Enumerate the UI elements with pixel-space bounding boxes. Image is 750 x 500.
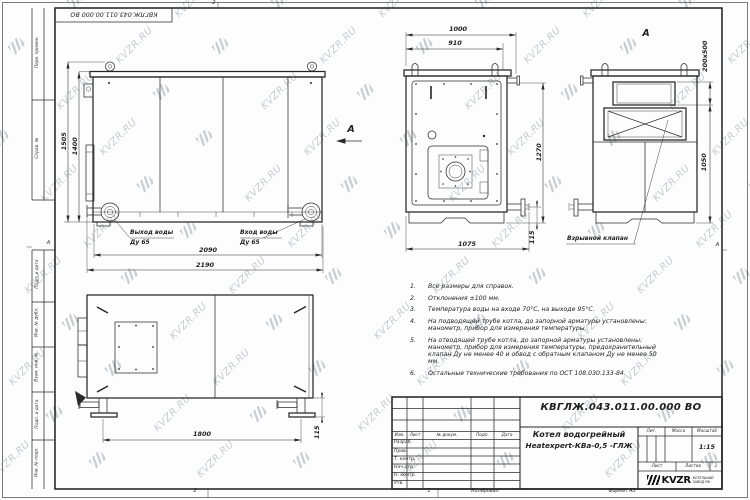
sheets-count: 1	[710, 464, 722, 468]
header-scale: Масштаб	[692, 429, 722, 433]
dim-side-height: 1270	[536, 132, 543, 172]
dim-opening: 200x500	[702, 36, 709, 76]
rear-view	[566, 64, 713, 245]
product-name-line1: Котел водогрейный	[521, 431, 637, 439]
dim-width-body: 2090	[188, 247, 228, 254]
note-number: 2.	[410, 295, 421, 302]
note-text: Остальные технические требования по ОСТ …	[421, 370, 660, 377]
copied-label: Копировал	[455, 490, 515, 495]
view-arrow-letter: А	[345, 125, 357, 135]
col-header-data: Дата	[494, 433, 520, 437]
dim-height-body: 1400	[72, 126, 79, 166]
drawing-sheet: KVZR.RUKVZR.RUKVZR.RUKVZR.RUKVZR.RUKVZR.…	[0, 0, 750, 500]
note-text: Температура воды на входе 70°С, на выход…	[421, 306, 660, 313]
label-water-outlet: Выход воды	[130, 230, 173, 236]
note-number: 3.	[410, 306, 421, 313]
row-n-kontr: Н. контр.	[394, 474, 416, 479]
row-utv: Утв.	[394, 482, 404, 487]
dim-side-bottom: 1075	[447, 241, 487, 248]
row-prov: Пров.	[394, 450, 407, 455]
zone-marker-top: 2	[209, 1, 219, 6]
side-view	[404, 32, 546, 252]
note-text: Все размеры для справок.	[421, 283, 660, 290]
side-label-sprav-no: Справ. №	[36, 98, 40, 198]
product-name-line2: Heatexpert-КВа-0,5 -ГЛЖ	[521, 442, 637, 449]
kvzr-logo-text: KVZR	[662, 475, 691, 486]
label-explosion-valve: Взрывной клапан	[567, 236, 628, 242]
bottom-zone-2: 2	[190, 490, 200, 495]
bottom-side-view	[75, 295, 325, 443]
kvzr-logo-mark-icon	[647, 475, 660, 485]
note-item: 4.На подводящей трубе котла, до запорной…	[410, 318, 660, 332]
note-number: 6.	[410, 370, 421, 377]
note-text: На подводящей трубе котла, до запорной а…	[421, 318, 660, 332]
side-label-vzam-inv: Взам. инв. №	[35, 345, 39, 390]
drawing-linework	[0, 0, 750, 500]
header-mass: Масса	[665, 429, 692, 433]
side-label-podp-data-2: Подп. и дата	[36, 390, 40, 438]
technical-notes: 1.Все размеры для справок. 2.Отклонения …	[410, 283, 660, 381]
side-label-podp-data-1: Подп. и дата	[36, 248, 40, 300]
label-water-inlet: Вход воды	[240, 230, 278, 236]
header-sheet: Лист	[638, 464, 676, 468]
col-header-doc: № докум.	[423, 433, 471, 437]
side-label-inv-podl: Инв. № подл.	[35, 438, 39, 487]
side-label-inv-dubl: Инв. № дубл.	[35, 300, 39, 345]
zone-marker-left: А	[44, 241, 53, 246]
dim-height-total: 1505	[61, 121, 68, 161]
dim-rear-height: 1050	[701, 142, 708, 182]
note-item: 2.Отклонения ±100 мм.	[410, 295, 660, 302]
dim-support-span: 1800	[182, 431, 222, 438]
row-razrab: Разраб.	[394, 441, 412, 446]
kvzr-logo-sub2: ЗАВОД РФ	[693, 480, 714, 484]
header-sheets: Листов	[676, 464, 710, 468]
bottom-zone-1: 1	[424, 490, 434, 495]
col-header-podp: Подп.	[471, 433, 494, 437]
row-nach-otd: Нач.отд.	[394, 466, 415, 471]
note-item: 3.Температура воды на входе 70°С, на вых…	[410, 306, 660, 313]
zone-marker-right: А	[713, 243, 722, 248]
note-number: 1.	[410, 283, 421, 290]
label-water-outlet-dn: Ду 65	[130, 240, 150, 246]
scale-value: 1:15	[692, 444, 722, 451]
row-t-kontr: Т. контр.	[394, 458, 415, 463]
dim-pipe-offset: 115	[529, 217, 536, 257]
rear-view-title: А	[640, 29, 652, 39]
note-item: 1.Все размеры для справок.	[410, 283, 660, 290]
note-number: 5.	[410, 337, 421, 366]
note-number: 4.	[410, 318, 421, 332]
title-doc-number: КВГЛЖ.043.011.00.000 ВО	[521, 403, 721, 413]
note-item: 6.Остальные технические требования по ОС…	[410, 370, 660, 377]
side-label-perv-primen: Перв. примен.	[36, 6, 40, 98]
dim-foot-height: 115	[314, 412, 321, 452]
format-label: Формат А3	[592, 490, 652, 495]
note-text: На отводящей трубе котла, до запорной ар…	[421, 337, 660, 366]
dim-width-total: 2190	[185, 262, 225, 269]
kvzr-logo: KVZR КОТЕЛЬНЫЙ ЗАВОД РФ	[639, 472, 721, 488]
kvzr-logo-subtitle: КОТЕЛЬНЫЙ ЗАВОД РФ	[693, 476, 714, 484]
header-lit: Лит.	[638, 429, 665, 433]
col-header-izm: Изм.	[392, 433, 407, 437]
top-stamp-doc-number: КВГЛЖ.043.011.00.000 ВО	[57, 10, 171, 16]
note-text: Отклонения ±100 мм.	[421, 295, 660, 302]
front-view	[64, 62, 362, 273]
dim-top-inner: 910	[435, 40, 475, 47]
col-header-list: Лист	[407, 433, 423, 437]
label-water-inlet-dn: Ду 65	[240, 240, 260, 246]
dim-top-total: 1000	[438, 26, 478, 33]
note-item: 5.На отводящей трубе котла, до запорной …	[410, 337, 660, 366]
